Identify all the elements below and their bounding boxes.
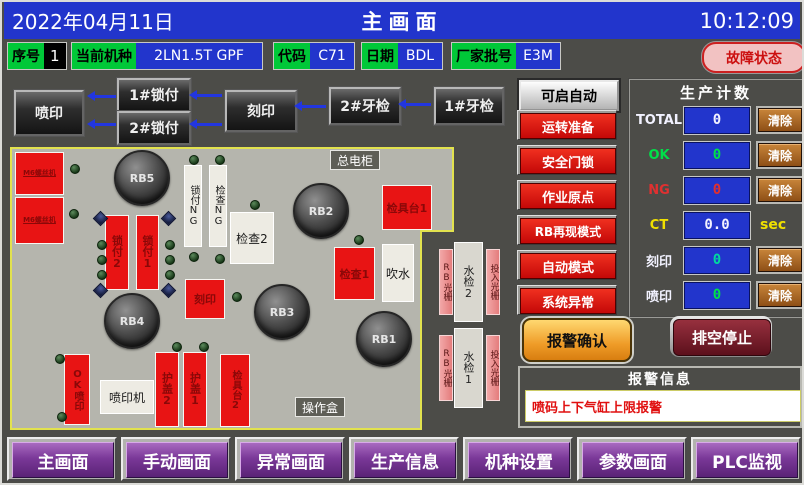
model-value: 2LN1.5T GPF [136, 43, 262, 69]
sensor-dot [232, 292, 242, 302]
clear-print-button[interactable]: 清除 [758, 283, 802, 307]
nav-model-settings[interactable]: 机种设置 [463, 437, 573, 481]
ng-value: 0 [684, 177, 750, 204]
model-group: 当前机种 2LN1.5T GPF [71, 42, 263, 70]
station-lock-1: 锁付1 [136, 215, 159, 290]
sensor-dot [215, 254, 225, 264]
sensor-dot [97, 255, 107, 265]
sensor-dot [165, 270, 175, 280]
sensor-dot [97, 270, 107, 280]
sequence-group: 序号 1 [7, 42, 67, 70]
flow-lock1-button[interactable]: 1#锁付 [117, 78, 191, 112]
production-row-ng: NG 0 清除 [634, 176, 802, 204]
production-count-panel: 生产计数 TOTAL 0 清除 OK 0 清除 NG 0 清除 CT 0.0 s… [628, 78, 804, 318]
nav-main-screen[interactable]: 主画面 [7, 437, 117, 481]
nav-manual-screen[interactable]: 手动画面 [121, 437, 231, 481]
flow-engrave-button[interactable]: 刻印 [225, 90, 297, 132]
status-safety-door[interactable]: 安全门锁 [517, 145, 617, 175]
station-printer: 喷印机 [100, 380, 154, 414]
sensor-diamond [161, 211, 177, 227]
status-system-error[interactable]: 系统异常 [517, 285, 617, 315]
sensor-dot [69, 209, 79, 219]
date-value: BDL [398, 43, 442, 69]
status-work-origin[interactable]: 作业原点 [517, 180, 617, 210]
robot-rb5: RB5 [114, 150, 170, 206]
sensor-dot [97, 240, 107, 250]
station-fixture-2: 检具台2 [220, 354, 250, 427]
alarm-confirm-button[interactable]: 报警确认 [522, 318, 632, 362]
station-ok-print: OK喷印 [64, 354, 90, 425]
sensor-dot [165, 255, 175, 265]
engrave-count-value: 0 [684, 247, 750, 274]
production-row-total: TOTAL 0 清除 [634, 106, 802, 134]
nav-plc-monitor[interactable]: PLC监视 [691, 437, 801, 481]
sequence-label: 序号 [8, 43, 44, 69]
station-rb-grating-lower: RB光栅 [439, 335, 453, 401]
total-value: 0 [684, 107, 750, 134]
title-bar: 2022年04月11日 主画面 10:12:09 [4, 2, 800, 39]
station-water-check-1: 水检1 [454, 328, 483, 408]
flow-arrow [194, 123, 222, 126]
flow-arrow [299, 105, 326, 108]
sensor-dot [172, 342, 182, 352]
sensor-dot [70, 164, 80, 174]
station-water-check-2: 水检2 [454, 242, 483, 322]
machine-layout-area: M6螺丝机 M6螺丝机 RB5 RB2 RB4 RB3 RB1 锁付NG 检查N… [10, 147, 454, 430]
station-rb-grating-upper: RB光栅 [439, 249, 453, 315]
station-check-1: 检查1 [334, 247, 375, 300]
station-check-ng: 检查NG [209, 165, 227, 247]
alarm-message: 喷码上下气缸上限报警 [525, 390, 801, 422]
code-label: 代码 [274, 43, 310, 69]
sensor-dot [250, 200, 260, 210]
sensor-dot [215, 155, 225, 165]
sensor-dot [199, 342, 209, 352]
nav-error-screen[interactable]: 异常画面 [235, 437, 345, 481]
sensor-dot [55, 354, 65, 364]
alarm-info-title: 报警信息 [520, 369, 800, 389]
flow-arrow [92, 123, 116, 126]
date-group: 日期 BDL [361, 42, 443, 70]
ok-value: 0 [684, 142, 750, 169]
print-count-value: 0 [684, 282, 750, 309]
flow-thread2-button[interactable]: 2#牙检 [329, 87, 401, 125]
clear-ok-button[interactable]: 清除 [758, 143, 802, 167]
page-title: 主画面 [4, 6, 800, 36]
sensor-dot [57, 412, 67, 422]
flow-print-button[interactable]: 喷印 [14, 90, 84, 136]
nav-parameter-screen[interactable]: 参数画面 [577, 437, 687, 481]
flow-arrow [194, 94, 222, 97]
nav-production-info[interactable]: 生产信息 [349, 437, 459, 481]
ct-value: 0.0 [684, 212, 750, 239]
flow-arrow [403, 103, 431, 106]
robot-rb4: RB4 [104, 293, 160, 349]
fault-status-button[interactable]: 故障状态 [702, 42, 804, 73]
station-lock-ng: 锁付NG [184, 165, 202, 247]
batch-value: E3M [516, 43, 560, 69]
clear-ng-button[interactable]: 清除 [758, 178, 802, 202]
station-screw-feeder-2: M6螺丝机 [15, 197, 64, 244]
code-value: C71 [310, 43, 354, 69]
ct-unit: sec [760, 217, 786, 233]
clock-display: 10:12:09 [700, 9, 794, 33]
production-row-print: 喷印 0 清除 [634, 281, 802, 309]
robot-rb3: RB3 [254, 284, 310, 340]
flow-thread1-button[interactable]: 1#牙检 [434, 87, 504, 125]
status-run-ready[interactable]: 运转准备 [517, 110, 617, 140]
engrave-count-label: 刻印 [634, 251, 684, 270]
station-lock-2: 锁付2 [105, 215, 129, 290]
auto-ready-button[interactable]: 可启自动 [519, 80, 619, 111]
flow-lock2-button[interactable]: 2#锁付 [117, 111, 191, 145]
production-row-ok: OK 0 清除 [634, 141, 802, 169]
date-label: 日期 [362, 43, 398, 69]
empty-stop-button[interactable]: 排空停止 [670, 316, 772, 357]
station-cover-2: 护盖2 [155, 352, 179, 427]
ct-label: CT [634, 218, 684, 233]
station-input-grating-lower: 投入光栅 [486, 335, 500, 401]
sensor-dot [189, 252, 199, 262]
sequence-value: 1 [44, 43, 66, 69]
code-group: 代码 C71 [273, 42, 355, 70]
hmi-main-screen: 2022年04月11日 主画面 10:12:09 序号 1 当前机种 2LN1.… [0, 0, 804, 485]
flow-arrow [92, 95, 116, 98]
sensor-dot [165, 240, 175, 250]
station-main-cabinet: 总电柜 [330, 150, 380, 170]
ok-label: OK [634, 148, 684, 163]
batch-group: 厂家批号 E3M [451, 42, 561, 70]
station-operation-box: 操作盒 [295, 397, 345, 417]
status-auto-mode[interactable]: 自动模式 [517, 250, 617, 280]
batch-label: 厂家批号 [452, 43, 516, 69]
sensor-dot [189, 155, 199, 165]
station-screw-feeder-1: M6螺丝机 [15, 152, 64, 195]
robot-rb1: RB1 [356, 311, 412, 367]
sensor-diamond [161, 283, 177, 299]
production-row-engrave: 刻印 0 清除 [634, 246, 802, 274]
station-check-2: 检查2 [230, 212, 274, 264]
production-row-ct: CT 0.0 sec [634, 211, 802, 239]
station-engrave: 刻印 [185, 279, 225, 319]
ng-label: NG [634, 183, 684, 198]
model-label: 当前机种 [72, 43, 136, 69]
station-fixture-1: 检具台1 [382, 185, 432, 230]
clear-engrave-button[interactable]: 清除 [758, 248, 802, 272]
station-cover-1: 护盖1 [183, 352, 207, 427]
sensor-dot [354, 235, 364, 245]
status-rb-replay-mode[interactable]: RB再现模式 [517, 215, 617, 245]
production-count-title: 生产计数 [630, 82, 802, 103]
alarm-info-panel: 报警信息 喷码上下气缸上限报警 [518, 366, 802, 428]
total-label: TOTAL [634, 113, 684, 128]
station-input-grating-upper: 投入光栅 [486, 249, 500, 315]
robot-rb2: RB2 [293, 183, 349, 239]
print-count-label: 喷印 [634, 286, 684, 305]
clear-total-button[interactable]: 清除 [758, 108, 802, 132]
station-blow-water: 吹水 [382, 244, 414, 302]
